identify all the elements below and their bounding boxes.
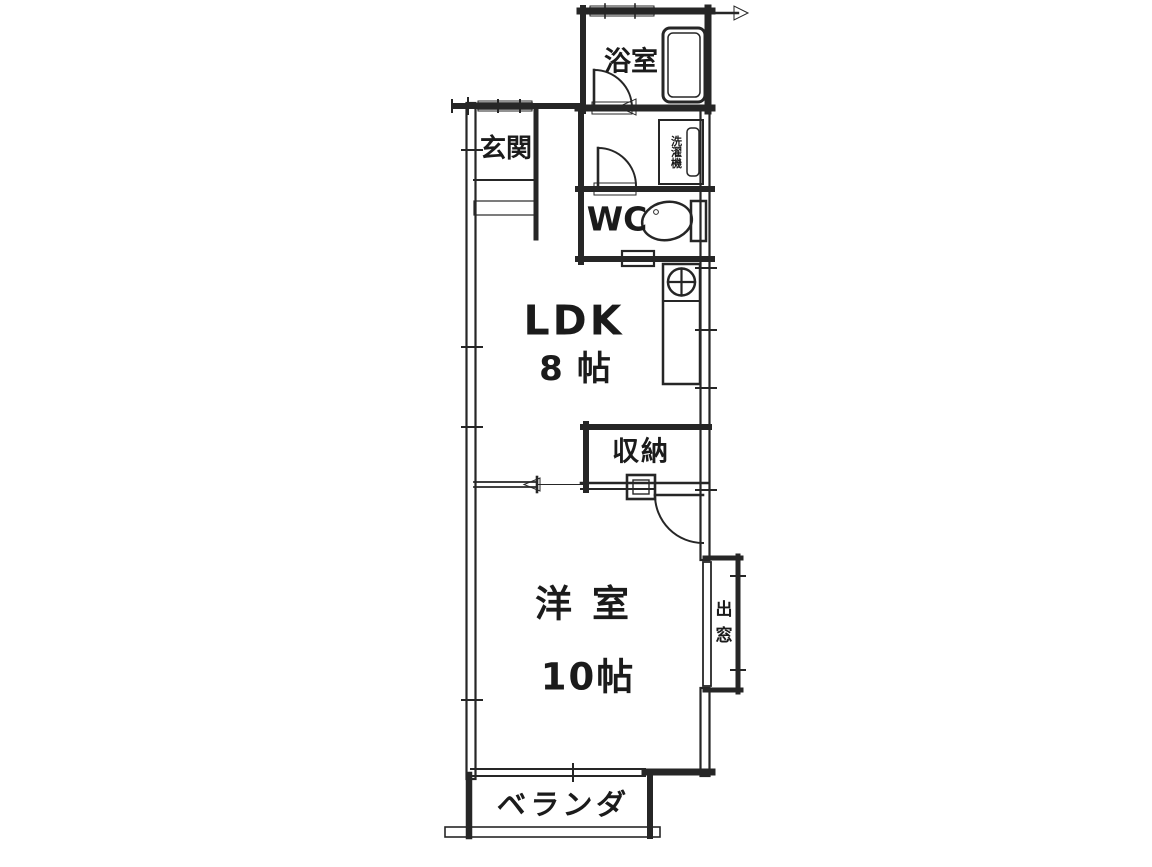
label-genkan: 玄関 [480, 136, 532, 162]
toilet-icon [654, 210, 659, 215]
bathtub-icon [663, 28, 705, 102]
bay-window-plane [703, 562, 711, 686]
closet-handle [627, 475, 655, 499]
veranda-rail [445, 827, 660, 837]
label-wc: WC [587, 203, 648, 236]
toilet-icon [639, 198, 695, 244]
label-western-room-size: 10帖 [541, 659, 636, 696]
label-bathroom: 浴室 [604, 49, 658, 76]
label-western-room: 洋室 [535, 586, 649, 623]
door-arc [598, 148, 636, 186]
floorplan-drawing [0, 0, 1152, 867]
window-wall [701, 106, 710, 560]
label-veranda: ベランダ [495, 791, 630, 820]
label-ldk-size: 8帖 [539, 352, 625, 386]
label-laundry: 洗濯機 [671, 136, 682, 169]
genkan-step-hatch [474, 201, 536, 215]
washing-machine-icon [687, 128, 699, 176]
bathtub-icon [668, 33, 700, 97]
window-wall [701, 688, 710, 776]
walls [445, 8, 741, 837]
toilet-icon [691, 201, 706, 241]
door-arc [655, 495, 703, 543]
label-storage: 収納 [612, 439, 670, 466]
floorplan-canvas: 玄関 浴室 洗濯機 WC LDK 8帖 収納 洋室 10帖 出窓 ベランダ [0, 0, 1152, 867]
label-bay-window: 出窓 [713, 600, 730, 652]
label-ldk: LDK [524, 301, 625, 342]
